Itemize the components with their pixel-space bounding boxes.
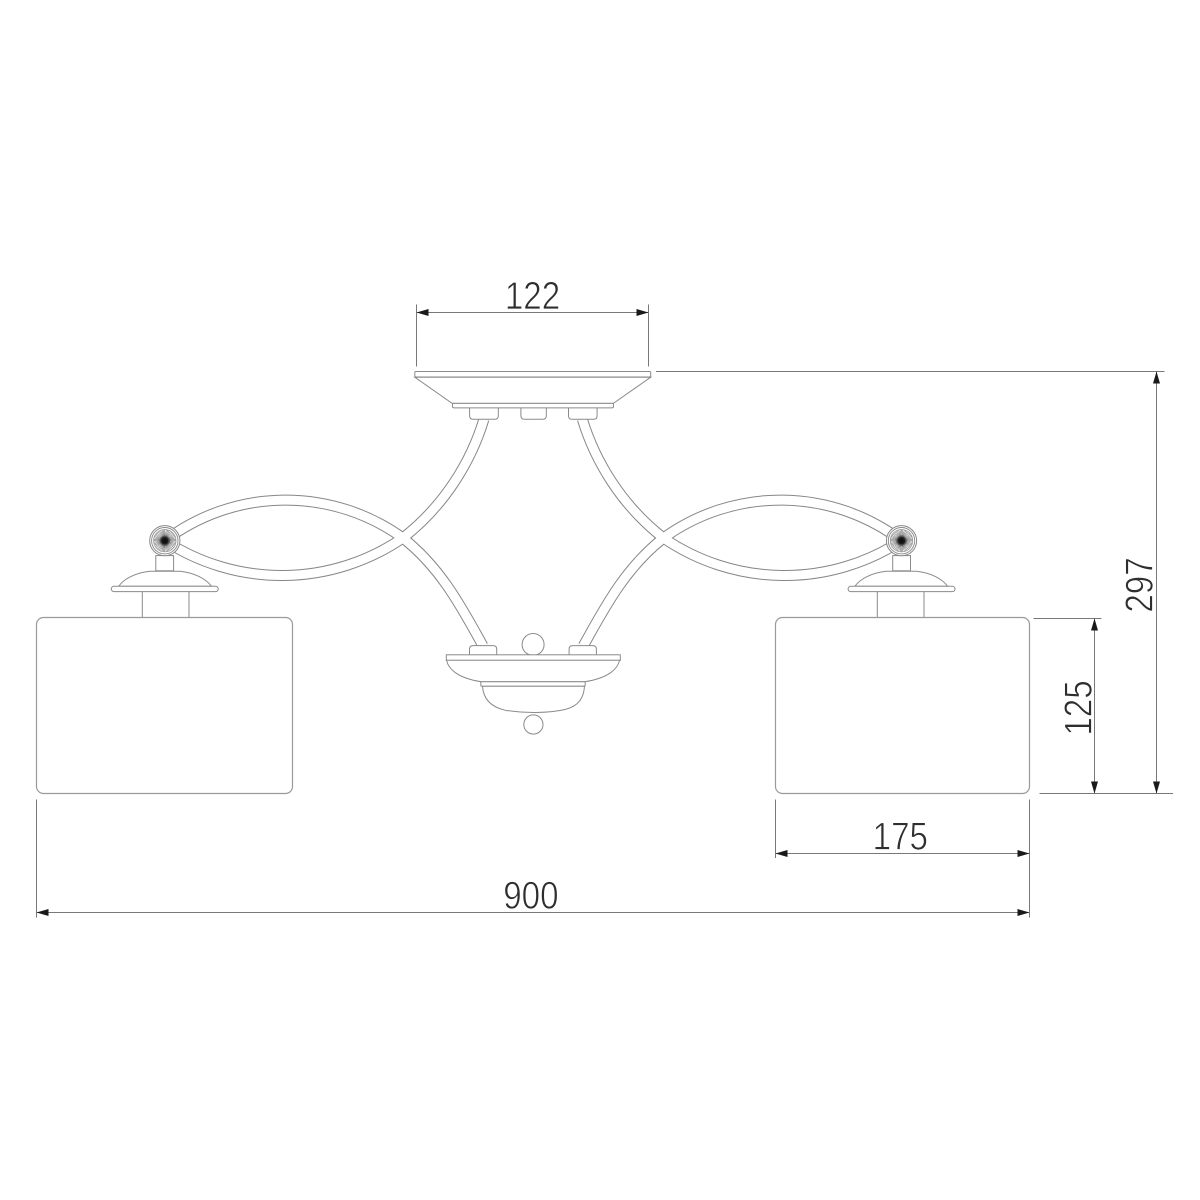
svg-text:297: 297 [1117,557,1161,612]
svg-text:125: 125 [1056,680,1100,735]
svg-text:900: 900 [503,873,558,917]
svg-text:175: 175 [873,814,928,858]
svg-text:122: 122 [505,273,560,317]
